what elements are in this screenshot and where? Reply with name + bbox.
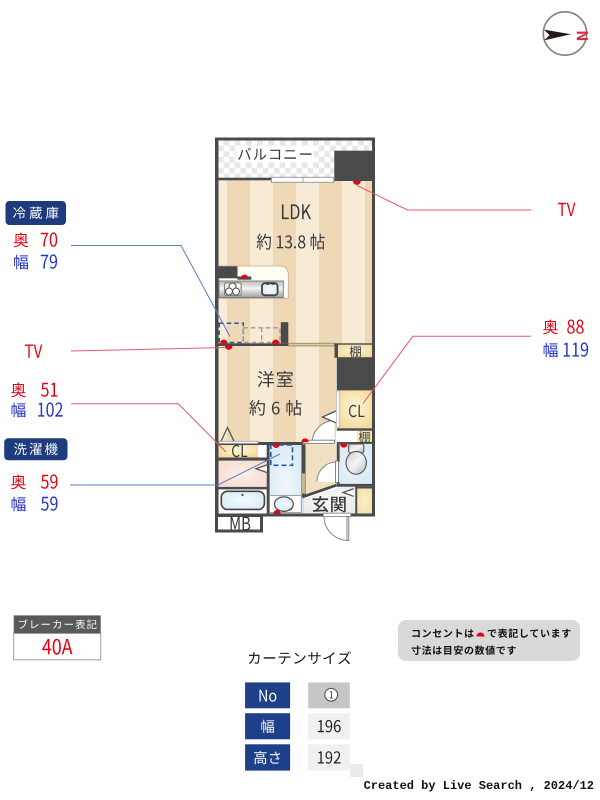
svg-text:Created by Live Search , 2024/: Created by Live Search , 2024/12 bbox=[364, 779, 594, 793]
